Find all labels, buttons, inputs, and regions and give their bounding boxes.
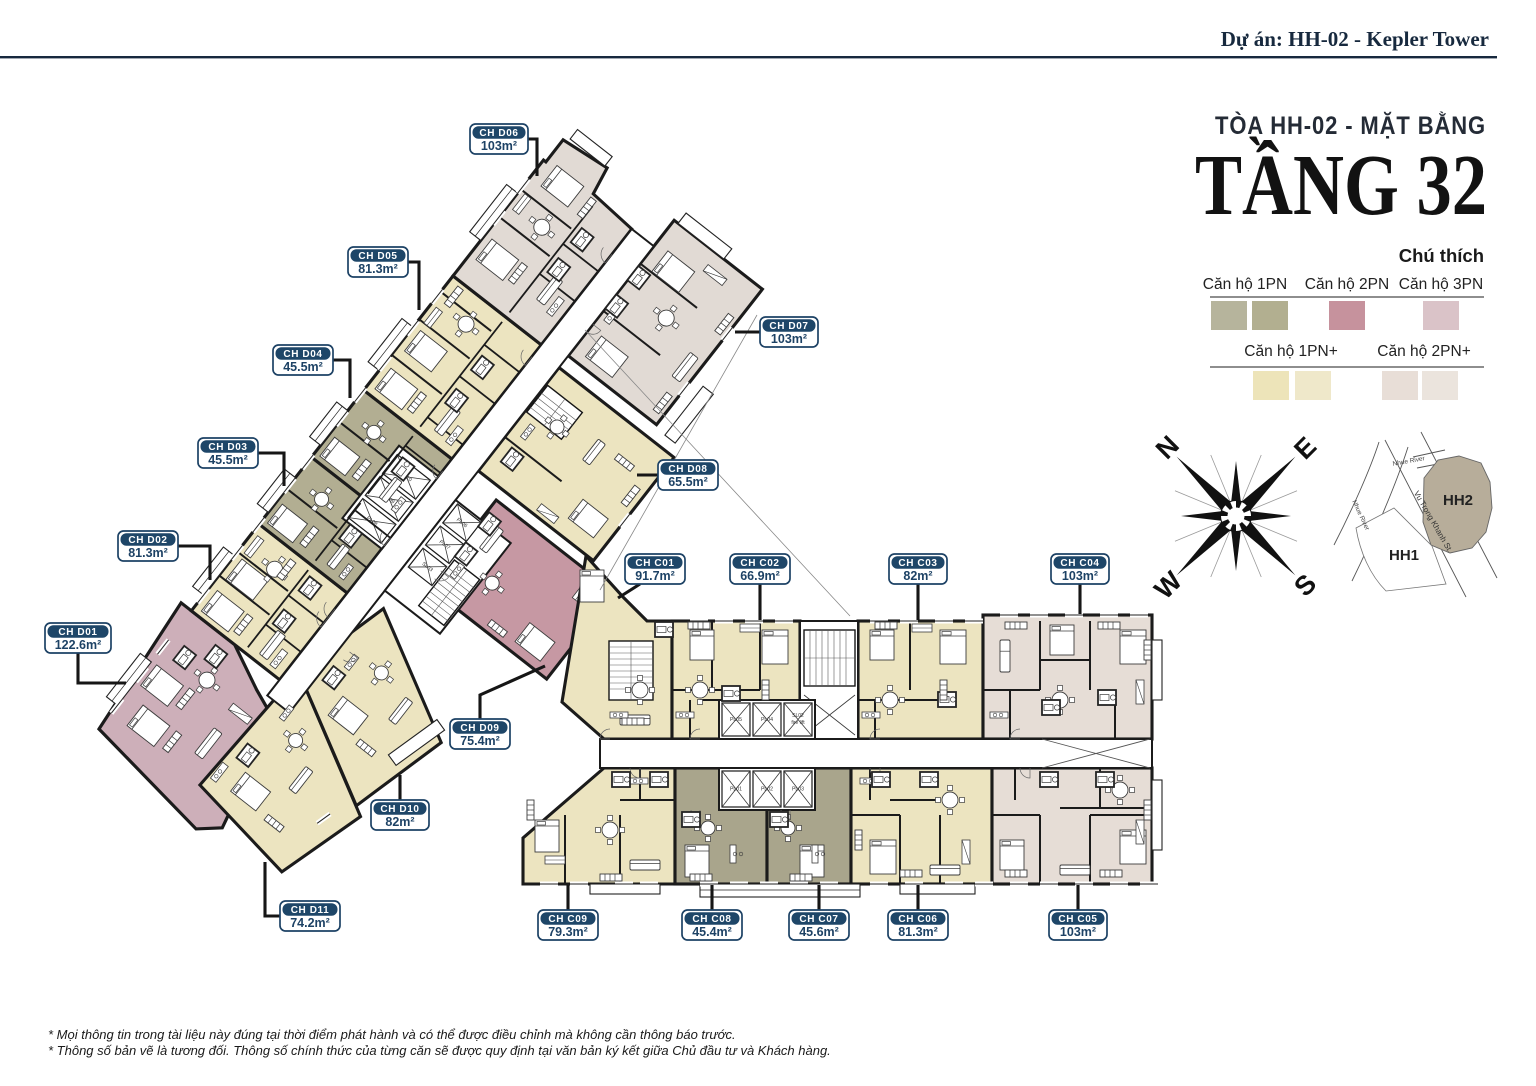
svg-text:79.3m²: 79.3m² bbox=[548, 925, 588, 939]
svg-text:CH C04: CH C04 bbox=[1060, 558, 1099, 569]
svg-text:CH C08: CH C08 bbox=[692, 914, 731, 925]
svg-text:E: E bbox=[1288, 431, 1322, 465]
svg-text:Căn hộ 2PN+: Căn hộ 2PN+ bbox=[1377, 343, 1471, 360]
svg-text:PL01: PL01 bbox=[730, 787, 742, 793]
svg-text:82m²: 82m² bbox=[903, 569, 932, 583]
svg-text:PL05: PL05 bbox=[730, 717, 742, 723]
svg-text:CH C07: CH C07 bbox=[799, 914, 838, 925]
svg-text:75.4m²: 75.4m² bbox=[460, 734, 500, 748]
svg-text:PL04: PL04 bbox=[761, 717, 773, 723]
svg-text:103m²: 103m² bbox=[1062, 569, 1098, 583]
svg-text:PL03: PL03 bbox=[792, 787, 804, 793]
svg-text:Chú thích: Chú thích bbox=[1399, 245, 1484, 266]
svg-text:CH C05: CH C05 bbox=[1058, 914, 1097, 925]
svg-text:81.3m²: 81.3m² bbox=[358, 262, 398, 276]
svg-text:45.5m²: 45.5m² bbox=[283, 360, 323, 374]
svg-text:CH C02: CH C02 bbox=[740, 558, 779, 569]
svg-text:81.3m²: 81.3m² bbox=[128, 546, 168, 560]
svg-text:TẦNG 32: TẦNG 32 bbox=[1195, 136, 1487, 233]
svg-text:fire lift: fire lift bbox=[791, 720, 805, 726]
svg-text:Dự án: HH-02 - Kepler Tower: Dự án: HH-02 - Kepler Tower bbox=[1221, 27, 1489, 51]
svg-text:HH2: HH2 bbox=[1443, 492, 1473, 509]
svg-text:CH C09: CH C09 bbox=[548, 914, 587, 925]
svg-text:CH D08: CH D08 bbox=[668, 464, 707, 475]
svg-text:CH C03: CH C03 bbox=[898, 558, 937, 569]
svg-text:SL02: SL02 bbox=[792, 713, 804, 719]
svg-text:PL02: PL02 bbox=[761, 787, 773, 793]
svg-text:W: W bbox=[1149, 565, 1189, 605]
svg-text:CH D02: CH D02 bbox=[128, 535, 167, 546]
svg-text:Căn hộ 3PN: Căn hộ 3PN bbox=[1399, 276, 1483, 293]
svg-text:74.2m²: 74.2m² bbox=[290, 916, 330, 930]
svg-text:66.9m²: 66.9m² bbox=[740, 569, 780, 583]
svg-text:81.3m²: 81.3m² bbox=[898, 925, 938, 939]
svg-text:CH D11: CH D11 bbox=[291, 905, 330, 916]
svg-text:91.7m²: 91.7m² bbox=[635, 569, 675, 583]
svg-text:45.4m²: 45.4m² bbox=[692, 925, 732, 939]
svg-text:CH D03: CH D03 bbox=[208, 442, 247, 453]
svg-text:* Mọi thông tin trong tài liệu: * Mọi thông tin trong tài liệu này đúng … bbox=[48, 1027, 736, 1042]
svg-text:Căn hộ 2PN: Căn hộ 2PN bbox=[1305, 276, 1389, 293]
svg-text:Căn hộ 1PN: Căn hộ 1PN bbox=[1203, 276, 1287, 293]
svg-text:45.5m²: 45.5m² bbox=[208, 453, 248, 467]
svg-text:CH D04: CH D04 bbox=[283, 349, 322, 360]
svg-text:CH D09: CH D09 bbox=[460, 723, 499, 734]
svg-text:65.5m²: 65.5m² bbox=[668, 475, 708, 489]
svg-text:HH1: HH1 bbox=[1389, 547, 1419, 564]
svg-text:CH C06: CH C06 bbox=[898, 914, 937, 925]
svg-text:* Thông số bản vẽ là tương đối: * Thông số bản vẽ là tương đối. Thông số… bbox=[48, 1043, 831, 1058]
svg-text:CH D06: CH D06 bbox=[479, 128, 518, 139]
svg-text:103m²: 103m² bbox=[481, 139, 517, 153]
svg-text:CH D05: CH D05 bbox=[358, 251, 397, 262]
svg-text:45.6m²: 45.6m² bbox=[799, 925, 839, 939]
svg-text:103m²: 103m² bbox=[771, 332, 807, 346]
svg-text:Nhue River: Nhue River bbox=[1392, 455, 1426, 468]
svg-text:CH C01: CH C01 bbox=[635, 558, 674, 569]
svg-text:CH D07: CH D07 bbox=[769, 321, 808, 332]
svg-text:Căn hộ 1PN+: Căn hộ 1PN+ bbox=[1244, 343, 1338, 360]
svg-text:82m²: 82m² bbox=[385, 815, 414, 829]
svg-text:CH D10: CH D10 bbox=[380, 804, 419, 815]
svg-text:122.6m²: 122.6m² bbox=[55, 638, 102, 652]
svg-text:CH D01: CH D01 bbox=[58, 627, 97, 638]
svg-text:103m²: 103m² bbox=[1060, 925, 1096, 939]
